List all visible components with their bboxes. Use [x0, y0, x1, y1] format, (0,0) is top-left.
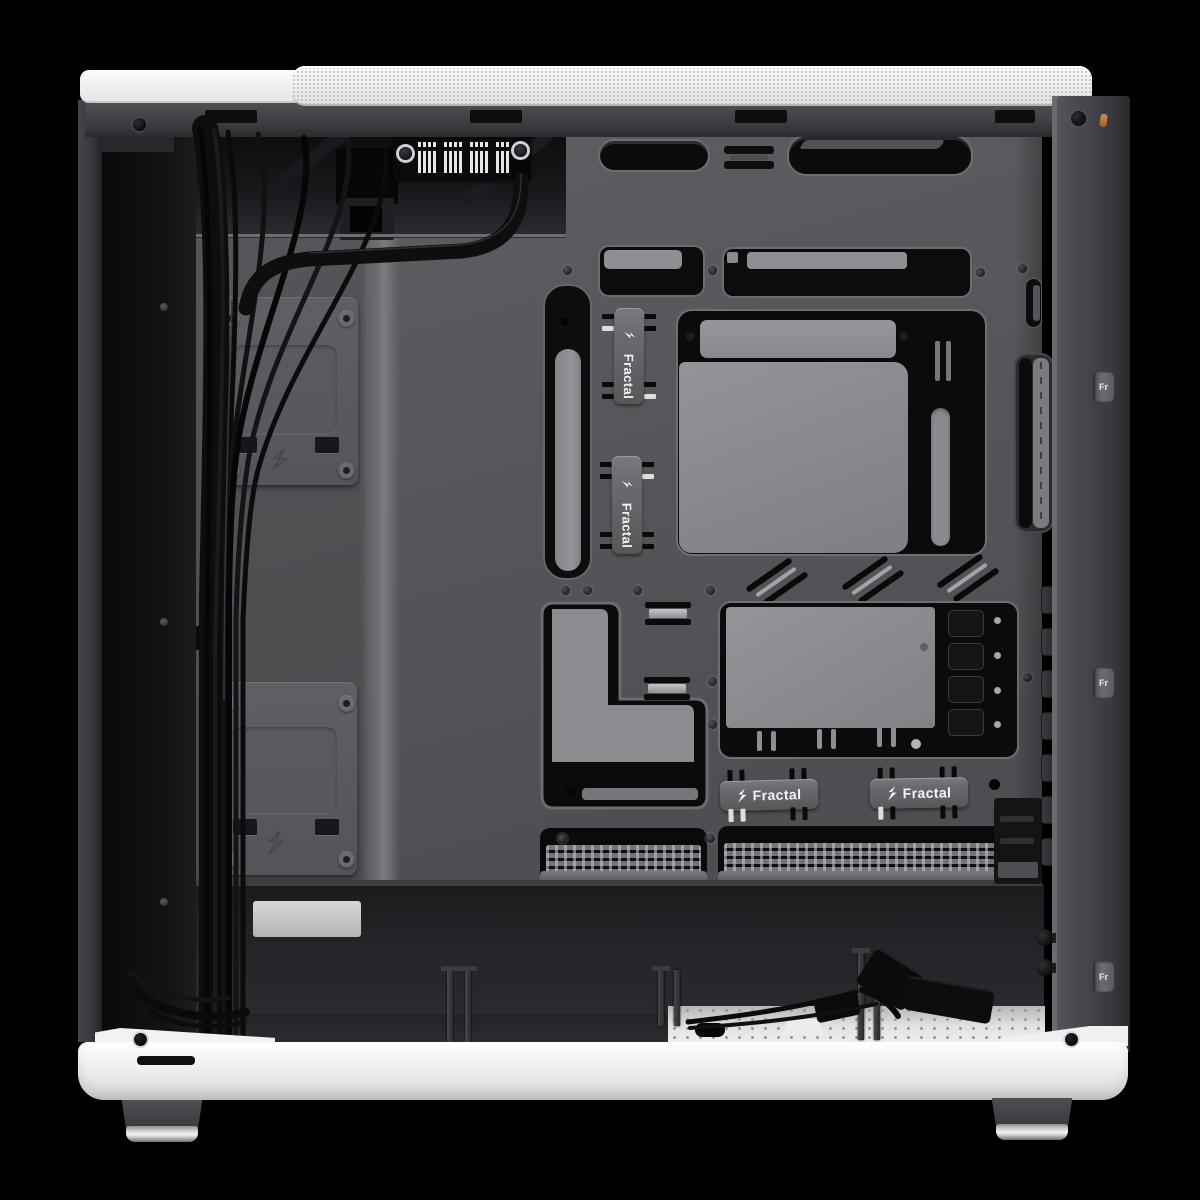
strap-prong — [602, 314, 614, 319]
strap-prong — [602, 394, 614, 399]
velcro-strap-horizontal: Fractal — [870, 766, 969, 818]
strap-brand-label-partial: Fr — [1099, 972, 1108, 982]
velcro-strap-vertical: Fractal — [600, 456, 654, 554]
fractal-logo-icon — [620, 479, 633, 489]
screw — [1065, 1033, 1078, 1046]
case-foot-chrome-ring — [996, 1124, 1068, 1140]
case-foot — [120, 1100, 204, 1128]
strap-prong — [602, 382, 614, 387]
velcro-strap-edge: Fr — [1093, 962, 1114, 992]
thumbscrew-knob-cap — [1036, 959, 1053, 976]
strap-prong — [602, 326, 614, 331]
strap-prong — [644, 394, 656, 399]
strap-brand-label: Fractal — [903, 784, 952, 801]
strap-prong — [644, 314, 656, 319]
screw — [1071, 111, 1086, 126]
rear-frame-column — [1056, 96, 1130, 1052]
case-foot — [990, 1098, 1074, 1126]
velcro-strap-horizontal: Fractal — [719, 768, 818, 821]
product-photo-pc-case-interior: Fractal Fractal Fractal — [0, 0, 1200, 1200]
frame-inner-highlight — [1052, 96, 1057, 1052]
strap-brand-label: Fractal — [621, 353, 636, 399]
strap-brand-label-partial: Fr — [1099, 382, 1108, 392]
bottom-rail — [78, 1042, 1128, 1100]
strap-brand-label: Fractal — [619, 502, 634, 548]
strap-prong — [644, 326, 656, 331]
strap-prong — [644, 382, 656, 387]
strap-brand-label-partial: Fr — [1099, 678, 1108, 688]
rail-slot — [137, 1056, 195, 1065]
cable-layer — [0, 0, 1200, 1200]
fractal-logo-icon — [736, 787, 747, 804]
screw — [134, 1033, 147, 1046]
thumbscrew-knob-cap — [1036, 929, 1053, 946]
velcro-strap-vertical: Fractal — [602, 308, 656, 404]
velcro-strap-edge: Fr — [1093, 372, 1114, 402]
strap-brand-label: Fractal — [752, 786, 801, 803]
fractal-logo-icon — [887, 785, 898, 802]
case-foot-chrome-ring — [126, 1126, 198, 1142]
fan-hub-ribbon-cable — [246, 180, 521, 308]
velcro-strap-edge: Fr — [1093, 668, 1114, 698]
fractal-logo-icon — [623, 330, 636, 340]
floor-cables — [688, 992, 856, 1022]
